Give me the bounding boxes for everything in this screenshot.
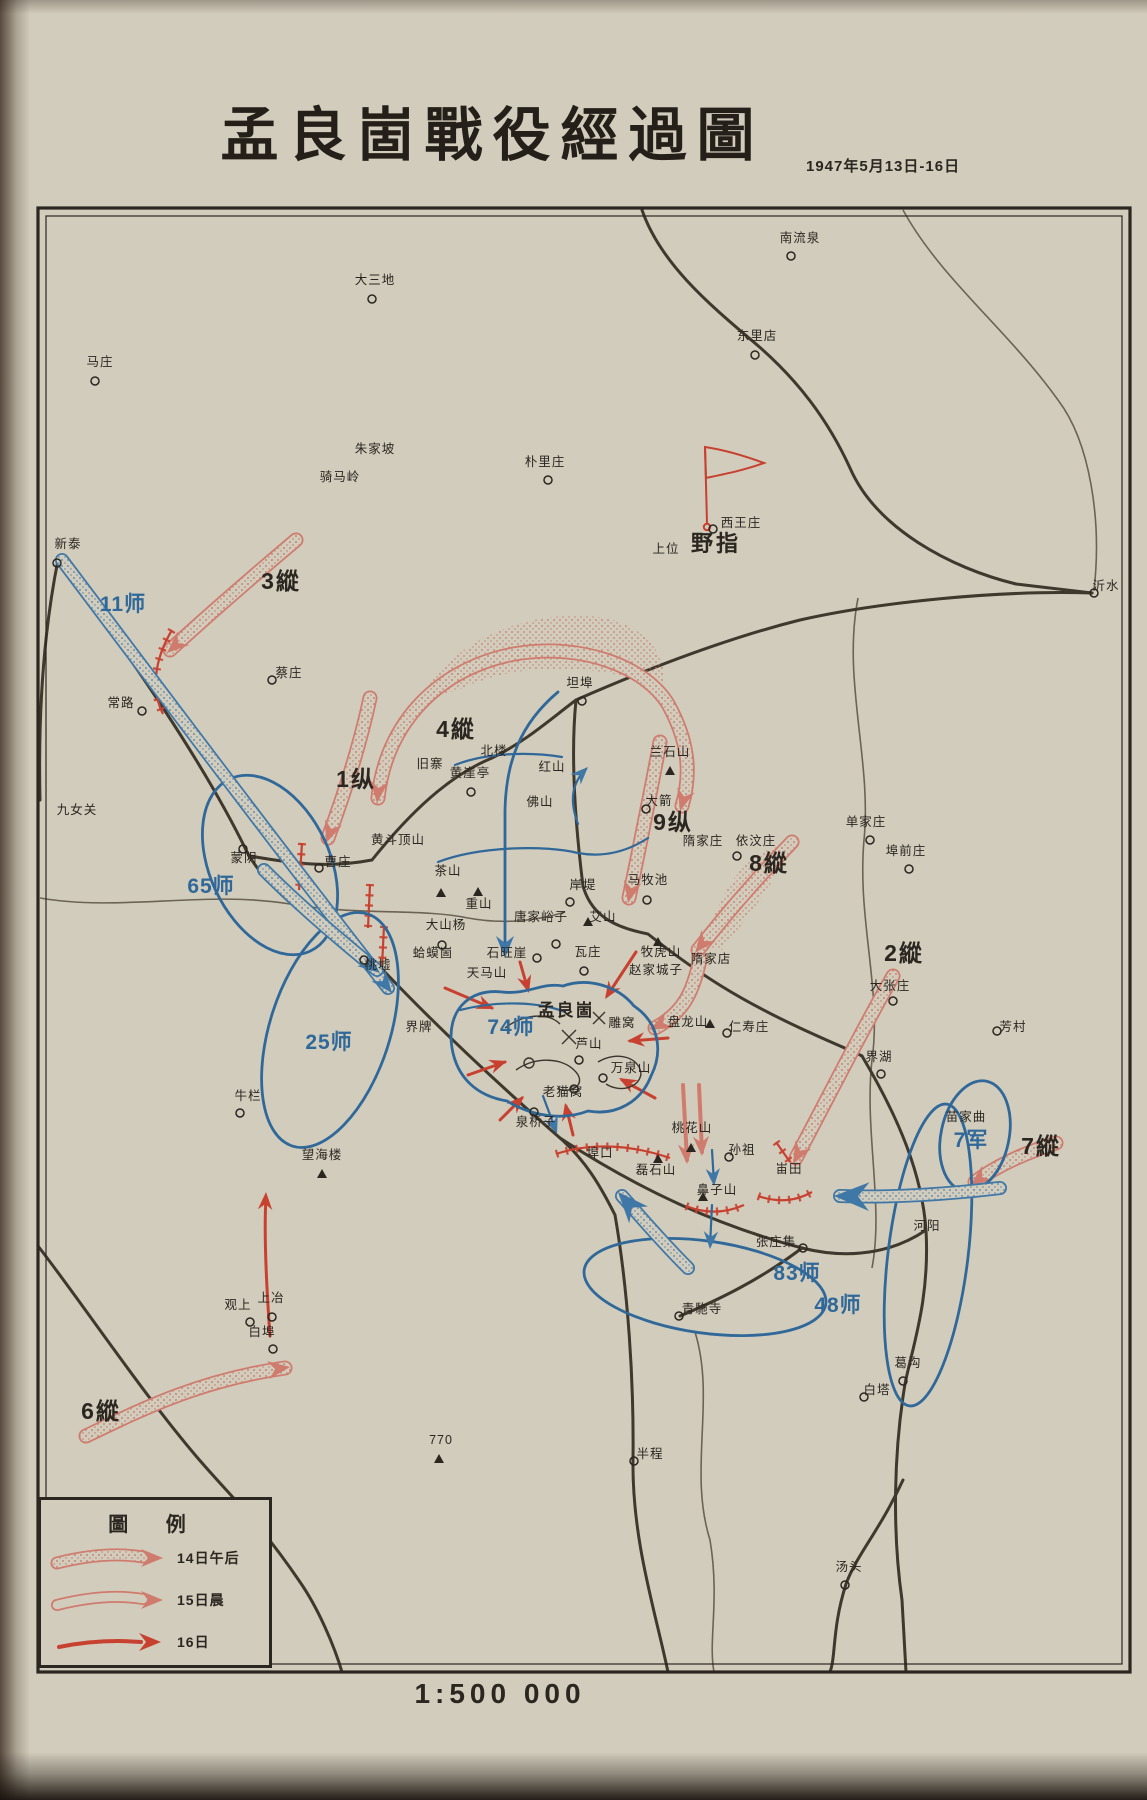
place-label: 坦埠	[566, 676, 593, 690]
place-label: 蔡庄	[275, 665, 302, 680]
place-label: 桃墟	[364, 957, 391, 972]
nationalist-unit-label: 83师	[773, 1262, 820, 1285]
page-title: 孟良崮戰役經過圖	[220, 103, 764, 168]
solid-arrow-icon	[49, 1625, 167, 1659]
pla-column-label: 1纵	[336, 766, 376, 792]
place-label: 界湖	[865, 1049, 892, 1064]
place-label: 上冶	[257, 1291, 284, 1305]
village-marker	[91, 377, 99, 385]
place-label: 黄崖亭	[450, 765, 491, 780]
village-marker	[866, 836, 874, 844]
pla-column-label: 3縱	[261, 568, 301, 594]
village-marker	[733, 852, 741, 860]
village-marker	[889, 997, 897, 1005]
pla-column-label: 6縱	[81, 1398, 121, 1424]
place-label: 天马山	[467, 966, 508, 980]
place-label: 老猫窝	[543, 1084, 584, 1099]
roads	[38, 210, 1092, 1672]
peak-marker	[317, 1169, 327, 1178]
legend-box: 圖 例 14日午后 15日晨 16日	[38, 1497, 272, 1668]
place-label: 茶山	[434, 863, 461, 878]
place-label: 芳村	[999, 1020, 1026, 1034]
outline-arrow-icon	[49, 1583, 167, 1617]
place-label: 隋家庄	[683, 833, 724, 848]
place-label: 石旺崖	[487, 946, 528, 960]
place-label: 曹庄	[324, 854, 351, 869]
place-label: 青駞寺	[682, 1302, 723, 1316]
rivers	[40, 210, 1096, 1672]
place-label: 牧虎山	[641, 945, 682, 959]
place-label: 埠前庄	[886, 843, 927, 858]
place-label: 瓦庄	[574, 944, 601, 959]
place-label: 上位	[652, 541, 679, 556]
place-label: 朴里庄	[525, 454, 566, 469]
place-label: 望海楼	[302, 1147, 343, 1162]
place-label: 万泉山	[611, 1060, 652, 1075]
place-label: 孟良崮	[538, 1000, 595, 1020]
village-marker	[368, 295, 376, 303]
place-label: 常路	[107, 695, 134, 710]
place-label: 沂水	[1092, 579, 1119, 593]
place-label: 旧寨	[416, 756, 443, 771]
village-marker	[599, 1074, 607, 1082]
place-label: 半程	[636, 1446, 663, 1461]
peak-marker	[436, 888, 446, 897]
place-label: 艾山	[589, 910, 616, 924]
place-label: 九女关	[57, 802, 98, 817]
village-marker	[751, 351, 759, 359]
place-label: 隋家店	[691, 951, 732, 966]
legend-label: 15日晨	[177, 1590, 225, 1610]
place-label: 磊石山	[636, 1163, 677, 1177]
village-marker	[544, 476, 552, 484]
place-label: 白塔	[863, 1382, 890, 1397]
village-marker	[138, 707, 146, 715]
place-label: 鼻子山	[697, 1182, 738, 1197]
village-marker	[269, 1345, 277, 1353]
place-label: 骑马岭	[320, 470, 361, 484]
place-label: 佛山	[526, 795, 553, 809]
legend-row-14th: 14日午后	[41, 1537, 269, 1579]
pla-column-label: 4縱	[436, 716, 476, 742]
place-label: 770	[429, 1433, 453, 1447]
battle-site-x-mark	[562, 1030, 576, 1044]
place-label: 大箭	[645, 793, 672, 808]
map-frame	[38, 208, 1130, 1672]
legend-label: 14日午后	[177, 1548, 240, 1568]
place-label: 葛沟	[894, 1356, 921, 1370]
place-label: 牛栏	[234, 1088, 261, 1103]
nationalist-unit-label: 48师	[814, 1294, 861, 1317]
village-marker	[643, 896, 651, 904]
scanned-map-page: { "page": { "title": "孟良崮戰役經過圖", "date":…	[0, 0, 1147, 1800]
pla-column-label: 2縱	[884, 940, 924, 966]
village-marker	[236, 1109, 244, 1117]
place-label: 大三地	[355, 273, 396, 287]
village-marker	[533, 954, 541, 962]
place-label: 芦山	[575, 1037, 602, 1051]
peak-marker	[665, 766, 675, 775]
battle-site-x-mark	[593, 1012, 605, 1024]
village-marker	[787, 252, 795, 260]
village-marker	[566, 898, 574, 906]
place-label: 泉桥子	[516, 1114, 557, 1129]
legend-row-15th: 15日晨	[41, 1579, 269, 1621]
village-marker	[467, 788, 475, 796]
place-label: 张庄集	[756, 1234, 797, 1249]
village-marker	[580, 967, 588, 975]
pla-column-label: 9纵	[653, 809, 693, 835]
place-label: 北楼	[480, 743, 507, 758]
place-label: 蒙阴	[230, 851, 257, 865]
village-marker	[905, 865, 913, 873]
place-label: 红山	[538, 759, 565, 774]
legend-title: 圖 例	[41, 1508, 269, 1537]
place-label: 单家庄	[846, 814, 887, 829]
pla-column-label: 8縱	[749, 850, 789, 876]
peak-marker	[473, 887, 483, 896]
place-label: 蛤蟆崮	[413, 946, 454, 960]
place-label: 雕窝	[608, 1015, 635, 1030]
nationalist-unit-label: 7军	[954, 1129, 989, 1152]
place-label: 西王庄	[721, 515, 762, 530]
place-label: 马庄	[86, 354, 113, 369]
legend-row-16th: 16日	[41, 1621, 269, 1663]
place-label: 南流泉	[780, 230, 821, 245]
place-label: 白埠	[248, 1324, 275, 1339]
place-label: 大张庄	[870, 978, 911, 993]
peak-marker	[434, 1454, 444, 1463]
place-label: 界牌	[405, 1019, 432, 1034]
campaign-date: 1947年5月13日-16日	[806, 155, 960, 176]
place-label: 埠口	[586, 1146, 613, 1160]
place-label: 河阳	[913, 1219, 940, 1233]
place-label: 苗家曲	[946, 1109, 987, 1124]
place-label: 仁寿庄	[729, 1019, 770, 1034]
place-label: 东里店	[737, 329, 778, 343]
place-label: 汤头	[835, 1560, 862, 1574]
field-hq-label: 野指	[691, 531, 741, 556]
nationalist-unit-label: 65师	[187, 875, 234, 898]
place-label: 依汶庄	[736, 833, 777, 848]
place-label: 朱家坡	[355, 441, 396, 456]
place-label: 盘龙山	[668, 1014, 709, 1029]
place-label: 兰石山	[650, 745, 691, 759]
place-label: 岸堤	[569, 878, 596, 892]
legend-label: 16日	[177, 1632, 210, 1652]
place-label: 黄斗顶山	[371, 833, 425, 847]
place-label: 孙祖	[728, 1142, 755, 1157]
place-label: 大山杨	[426, 917, 467, 932]
map-scale: 1:500 000	[350, 1678, 650, 1710]
place-label: 新泰	[54, 536, 81, 551]
place-label: 重山	[465, 896, 492, 911]
village-marker	[575, 1056, 583, 1064]
place-label: 马牧池	[628, 873, 669, 887]
stippled-arrow-icon	[49, 1541, 167, 1575]
village-marker	[552, 940, 560, 948]
nationalist-unit-label: 11师	[100, 593, 146, 616]
nationalist-unit-label: 25师	[305, 1031, 352, 1054]
place-label: 桃花山	[672, 1120, 713, 1135]
place-label: 赵家城子	[629, 962, 683, 977]
pla-column-label: 7縱	[1021, 1133, 1061, 1159]
village-marker	[877, 1070, 885, 1078]
place-label: 唐家峪子	[514, 909, 568, 924]
nationalist-unit-label: 74师	[487, 1016, 534, 1039]
place-label: 峀田	[775, 1161, 802, 1176]
place-label: 观上	[224, 1298, 251, 1312]
